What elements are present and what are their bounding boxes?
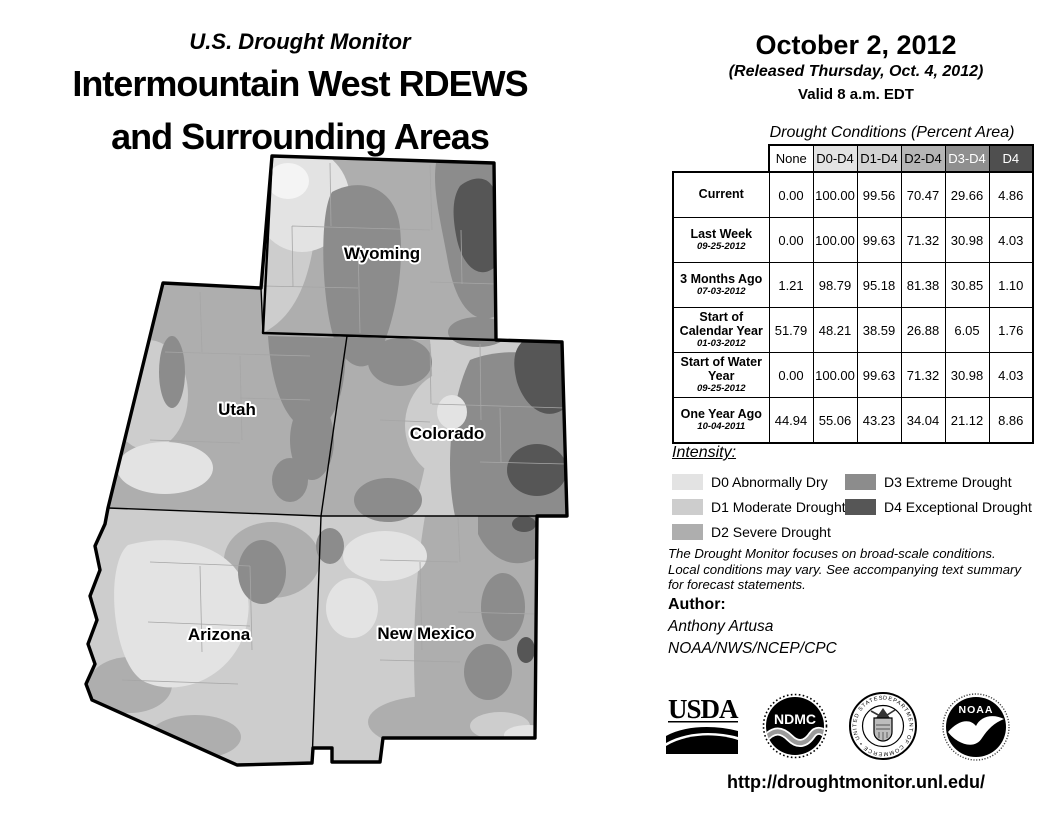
cell-value: 100.00 xyxy=(813,172,857,218)
label-wyoming: Wyoming xyxy=(344,244,420,263)
cell-value: 30.98 xyxy=(945,218,989,263)
cell-value: 81.38 xyxy=(901,263,945,308)
noaa-wordmark: NOAA xyxy=(959,704,994,716)
drought-conditions-table: None D0-D4 D1-D4 D2-D4 D3-D4 D4 Current … xyxy=(672,144,1034,444)
row-label: Start of Water Year09-25-2012 xyxy=(673,353,769,398)
cell-value: 44.94 xyxy=(769,398,813,444)
label-utah: Utah xyxy=(218,400,256,419)
cell-value: 99.56 xyxy=(857,172,901,218)
col-header-d1-d4: D1-D4 xyxy=(857,145,901,172)
table-caption: Drought Conditions (Percent Area) xyxy=(712,124,1056,142)
author-name: Anthony Artusa xyxy=(668,618,773,636)
cell-value: 26.88 xyxy=(901,308,945,353)
disclaimer-text: The Drought Monitor focuses on broad-sca… xyxy=(668,546,1048,593)
usda-wordmark: USDA xyxy=(668,694,739,724)
cell-value: 30.85 xyxy=(945,263,989,308)
valid-time: Valid 8 a.m. EDT xyxy=(660,86,1052,103)
cell-value: 1.76 xyxy=(989,308,1033,353)
row-label: One Year Ago10-04-2011 xyxy=(673,398,769,444)
noaa-logo: NOAA xyxy=(943,694,1009,760)
row-label: Last Week09-25-2012 xyxy=(673,218,769,263)
cell-value: 34.04 xyxy=(901,398,945,444)
label-colorado: Colorado xyxy=(410,424,485,443)
shade-northwest-wyoming-light xyxy=(267,163,309,199)
usda-rule xyxy=(668,721,738,723)
col-header-d3-d4: D3-D4 xyxy=(945,145,989,172)
usda-logo: USDA xyxy=(666,694,739,754)
cell-value: 71.32 xyxy=(901,353,945,398)
cell-value: 98.79 xyxy=(813,263,857,308)
cell-value: 8.86 xyxy=(989,398,1033,444)
cell-value: 43.23 xyxy=(857,398,901,444)
usda-swoosh-lower xyxy=(666,735,738,754)
cell-value: 30.98 xyxy=(945,353,989,398)
legend-item-d3: D3 Extreme Drought xyxy=(845,469,1052,494)
intensity-legend: Intensity: D0 Abnormally Dry D1 Moderate… xyxy=(672,444,1052,544)
shade-northwest-colorado-d3 xyxy=(368,338,432,386)
shade-east-colorado-d4 xyxy=(507,444,567,496)
shade-east-newmexico-d3a xyxy=(481,573,525,641)
shade-southwest-arizona-d2b xyxy=(149,715,241,759)
cell-value: 4.03 xyxy=(989,218,1033,263)
cell-value: 38.59 xyxy=(857,308,901,353)
cell-value: 4.86 xyxy=(989,172,1033,218)
cell-value: 99.63 xyxy=(857,218,901,263)
table-row-start-water-year: Start of Water Year09-25-2012 0.00 100.0… xyxy=(673,353,1033,398)
cell-value: 0.00 xyxy=(769,218,813,263)
shade-northwest-newmexico-d0a xyxy=(343,531,427,581)
map-date: October 2, 2012 xyxy=(660,30,1052,61)
shade-southeast-newmexico-d0 xyxy=(504,725,552,745)
label-new-mexico: New Mexico xyxy=(377,624,474,643)
cell-value: 21.12 xyxy=(945,398,989,444)
cell-value: 71.32 xyxy=(901,218,945,263)
table-row-current: Current 0.00 100.00 99.56 70.47 29.66 4.… xyxy=(673,172,1033,218)
cell-value: 0.00 xyxy=(769,172,813,218)
cell-value: 0.00 xyxy=(769,353,813,398)
legend-item-d0: D0 Abnormally Dry xyxy=(672,469,845,494)
legend-item-d1: D1 Moderate Drought xyxy=(672,494,845,519)
col-header-d2-d4: D2-D4 xyxy=(901,145,945,172)
cell-value: 48.21 xyxy=(813,308,857,353)
drought-monitor-report: U.S. Drought Monitor Intermountain West … xyxy=(0,0,1056,816)
d1-swatch xyxy=(672,499,703,515)
legend-title: Intensity: xyxy=(672,444,1052,462)
cell-value: 100.00 xyxy=(813,218,857,263)
d4-swatch xyxy=(845,499,876,515)
ndmc-wordmark: NDMC xyxy=(774,711,816,727)
website-url: http://droughtmonitor.unl.edu/ xyxy=(660,772,1052,793)
shade-east-utah-d3b xyxy=(272,458,308,502)
col-header-d4: D4 xyxy=(989,145,1033,172)
cell-value: 4.03 xyxy=(989,353,1033,398)
table-row-3-months-ago: 3 Months Ago07-03-2012 1.21 98.79 95.18 … xyxy=(673,263,1033,308)
cell-value: 55.06 xyxy=(813,398,857,444)
cell-value: 95.18 xyxy=(857,263,901,308)
cell-value: 51.79 xyxy=(769,308,813,353)
ndmc-logo: NDMC xyxy=(764,695,829,758)
d2-swatch xyxy=(672,524,703,540)
col-header-d0-d4: D0-D4 xyxy=(813,145,857,172)
row-label: Start of Calendar Year01-03-2012 xyxy=(673,308,769,353)
table-row-start-calendar-year: Start of Calendar Year01-03-2012 51.79 4… xyxy=(673,308,1033,353)
table-header-row: None D0-D4 D1-D4 D2-D4 D3-D4 D4 xyxy=(673,145,1033,172)
legend-item-d2: D2 Severe Drought xyxy=(672,519,845,544)
shade-west-utah-d0 xyxy=(117,442,213,494)
drought-map: Wyoming Utah Colorado Arizona New Mexico xyxy=(0,0,660,816)
shade-northeast-newmexico-d4 xyxy=(512,516,536,532)
cell-value: 6.05 xyxy=(945,308,989,353)
shade-northwest-newmexico-d0b xyxy=(326,578,378,638)
row-label: 3 Months Ago07-03-2012 xyxy=(673,263,769,308)
legend-item-d4: D4 Exceptional Drought xyxy=(845,494,1052,519)
cell-value: 99.63 xyxy=(857,353,901,398)
cell-value: 70.47 xyxy=(901,172,945,218)
shade-southeast-wyoming-d3 xyxy=(448,317,508,347)
table-row-last-week: Last Week09-25-2012 0.00 100.00 99.63 71… xyxy=(673,218,1033,263)
cell-value: 1.10 xyxy=(989,263,1033,308)
shade-east-newmexico-d4 xyxy=(517,637,535,663)
author-heading: Author: xyxy=(668,596,726,614)
shade-west-utah-d3 xyxy=(159,336,185,408)
author-org: NOAA/NWS/NCEP/CPC xyxy=(668,640,837,658)
row-label: Current xyxy=(673,172,769,218)
table-corner xyxy=(673,145,769,172)
label-arizona: Arizona xyxy=(188,625,251,644)
table-row-one-year-ago: One Year Ago10-04-2011 44.94 55.06 43.23… xyxy=(673,398,1033,444)
d0-swatch xyxy=(672,474,703,490)
shade-fourcorners-arizona-d3 xyxy=(238,540,286,604)
drought-shading-layer xyxy=(80,145,580,780)
d3-swatch xyxy=(845,474,876,490)
shade-east-newmexico-d3b xyxy=(464,644,512,700)
cell-value: 1.21 xyxy=(769,263,813,308)
cell-value: 100.00 xyxy=(813,353,857,398)
agency-logos: USDA NDMC DEPARTMENT OF COMMERCE • UNITE… xyxy=(660,680,1056,770)
cell-value: 29.66 xyxy=(945,172,989,218)
col-header-none: None xyxy=(769,145,813,172)
released-date: (Released Thursday, Oct. 4, 2012) xyxy=(660,63,1052,81)
